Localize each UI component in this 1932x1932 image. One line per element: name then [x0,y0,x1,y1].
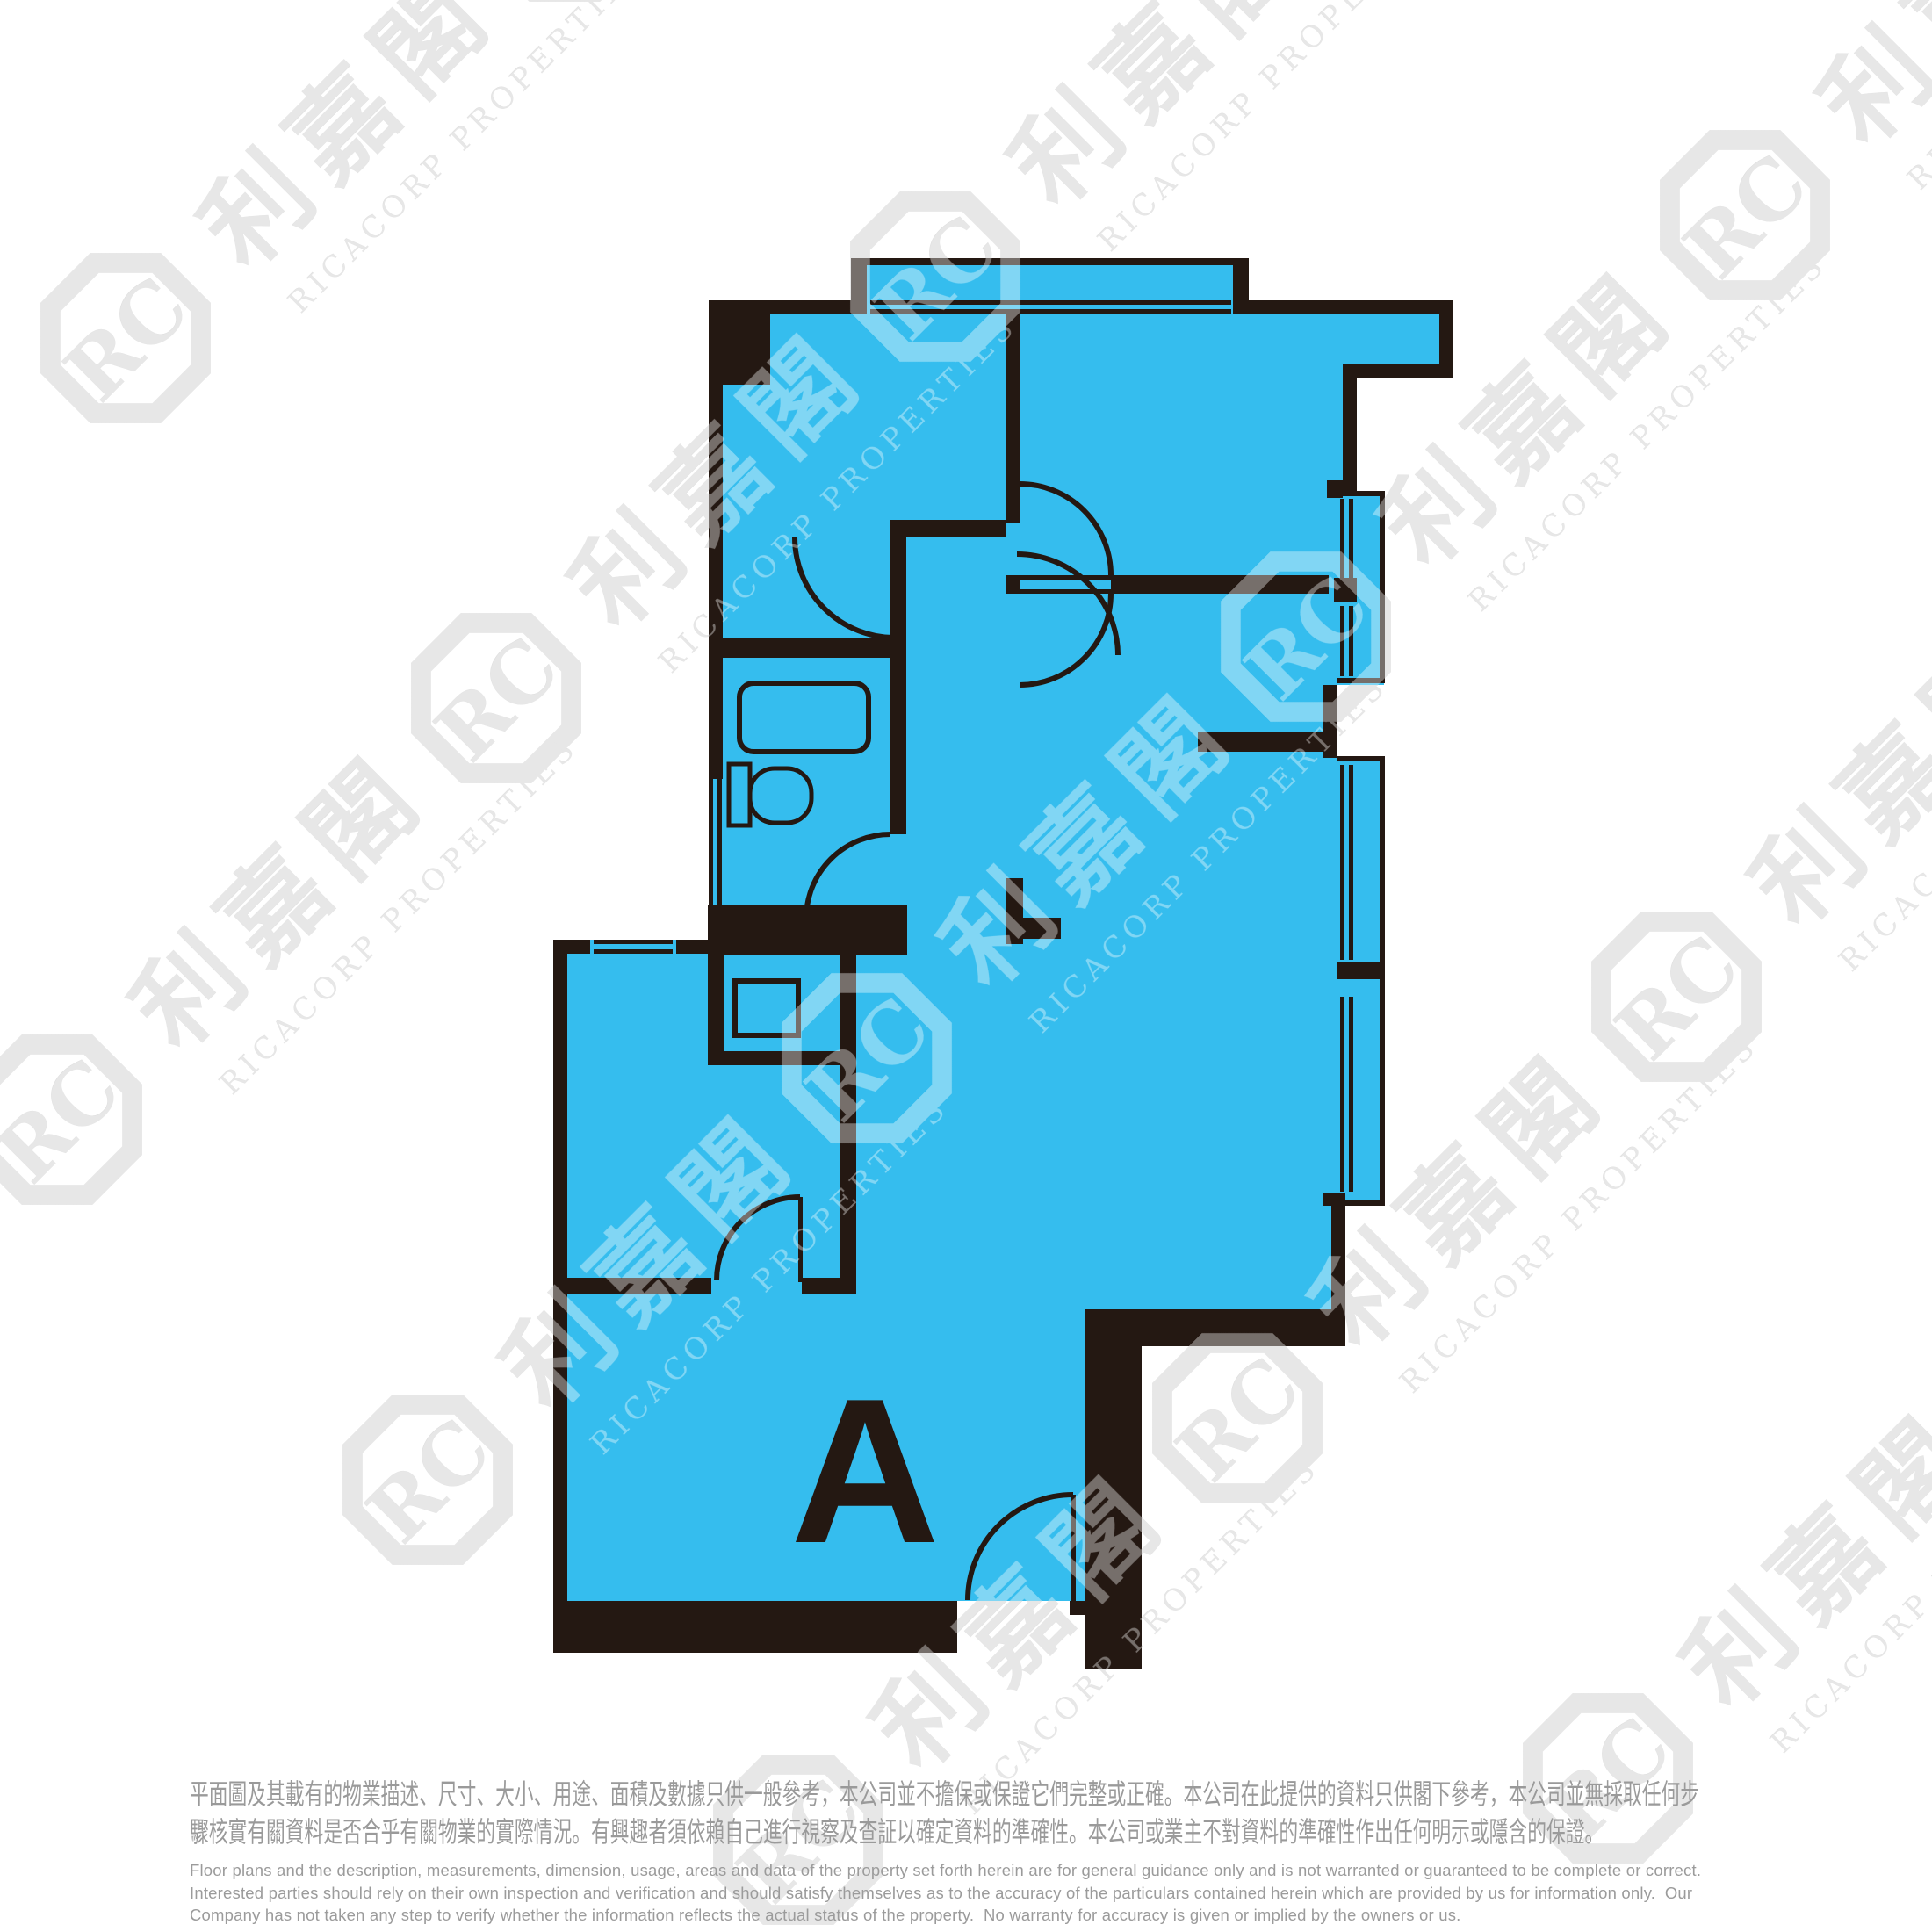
disclaimer-zh-line-2: 驟核實有關資料是否合乎有關物業的實際情況。有興趣者須依賴自己進行視察及查証以確定… [190,1813,1360,1851]
bedroom2-door-leaf [1020,575,1111,580]
unit-label: A [790,1355,940,1586]
disclaimer-en-line-3: Company has not taken any step to verify… [190,1904,1911,1927]
bedroom2-door-leaf2 [1020,589,1111,594]
disclaimer-en-line-2: Interested parties should rely on their … [190,1882,1911,1905]
disclaimer: 平面圖及其載有的物業描述、尺寸、大小、用途、面積及數據只供一般參考，本公司並不擔… [190,1776,1911,1927]
disclaimer-zh-line-1: 平面圖及其載有的物業描述、尺寸、大小、用途、面積及數據只供一般參考，本公司並不擔… [190,1776,1360,1813]
disclaimer-en: Floor plans and the description, measure… [190,1859,1911,1927]
watermark-layer-light [0,0,1932,1932]
floorplan-page: RC 利嘉閣 RICACORP PROPERTIES [0,0,1932,1932]
floor-plan-svg: RC 利嘉閣 RICACORP PROPERTIES [0,0,1932,1932]
disclaimer-en-line-1: Floor plans and the description, measure… [190,1859,1911,1882]
